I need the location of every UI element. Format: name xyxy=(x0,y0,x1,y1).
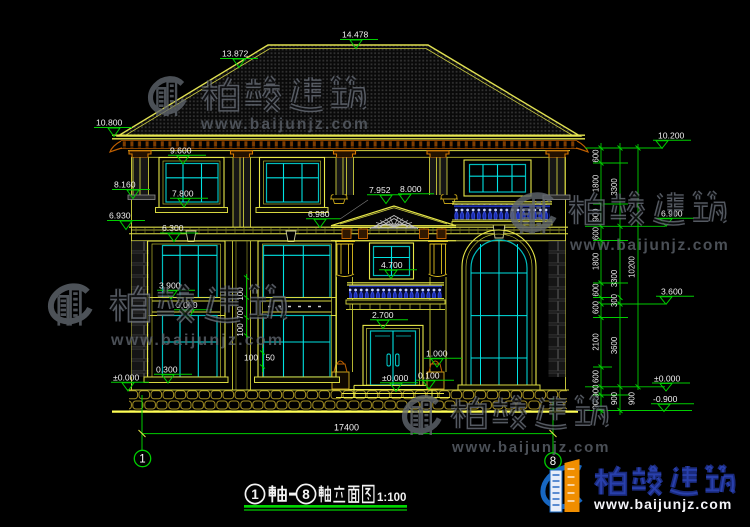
svg-text:9.600: 9.600 xyxy=(170,146,192,156)
svg-text:2.700: 2.700 xyxy=(372,310,394,320)
svg-text:1: 1 xyxy=(139,454,145,466)
svg-text:7.952: 7.952 xyxy=(369,185,391,195)
svg-text:3.600: 3.600 xyxy=(661,287,683,297)
svg-text:6.930: 6.930 xyxy=(109,211,131,221)
svg-text:8.000: 8.000 xyxy=(400,184,422,194)
svg-text:www.baijunjz.com: www.baijunjz.com xyxy=(110,332,284,349)
svg-text:1:100: 1:100 xyxy=(377,492,406,504)
svg-text:-0.900: -0.900 xyxy=(653,394,678,404)
svg-text:14.478: 14.478 xyxy=(342,30,369,40)
svg-text:900: 900 xyxy=(628,391,637,405)
svg-text:13.872: 13.872 xyxy=(222,49,249,59)
svg-text:1: 1 xyxy=(251,487,259,502)
svg-text:10.800: 10.800 xyxy=(96,118,123,128)
svg-text:0.300: 0.300 xyxy=(156,365,178,375)
svg-text:4.700: 4.700 xyxy=(381,260,403,270)
svg-text:10200: 10200 xyxy=(628,255,637,277)
svg-text:1800: 1800 xyxy=(592,252,601,270)
svg-text:600: 600 xyxy=(592,300,601,314)
svg-text:10.200: 10.200 xyxy=(658,131,685,141)
svg-text:900: 900 xyxy=(610,391,619,405)
svg-text:300: 300 xyxy=(610,293,619,307)
svg-text:600: 600 xyxy=(592,149,601,163)
svg-text:±0.000: ±0.000 xyxy=(654,374,680,384)
svg-text:8: 8 xyxy=(550,456,556,468)
svg-text:1800: 1800 xyxy=(592,174,601,192)
svg-text:±0.000: ±0.000 xyxy=(382,373,408,383)
svg-text:0.100: 0.100 xyxy=(418,371,440,381)
svg-text:www.baijunjz.com: www.baijunjz.com xyxy=(569,237,729,254)
svg-text:8.160: 8.160 xyxy=(114,180,136,190)
svg-text:2100: 2100 xyxy=(592,333,601,351)
svg-text:www.baijunjz.com: www.baijunjz.com xyxy=(451,439,610,456)
svg-text:3300: 3300 xyxy=(610,269,619,287)
svg-text:3.900: 3.900 xyxy=(159,281,181,291)
svg-text:7.800: 7.800 xyxy=(172,189,194,199)
svg-text:www.baijunjz.com: www.baijunjz.com xyxy=(593,496,732,512)
svg-text:6.300: 6.300 xyxy=(162,223,184,233)
svg-text:8: 8 xyxy=(302,487,310,502)
svg-text:50: 50 xyxy=(266,353,276,363)
svg-text:3300: 3300 xyxy=(610,178,619,196)
svg-text:6.980: 6.980 xyxy=(308,209,330,219)
svg-text:www.baijunjz.com: www.baijunjz.com xyxy=(200,116,370,133)
svg-text:100: 100 xyxy=(244,353,258,363)
svg-text:17400: 17400 xyxy=(334,423,359,433)
svg-text:600: 600 xyxy=(592,283,601,297)
svg-text:1.000: 1.000 xyxy=(426,349,448,359)
svg-text:±0.000: ±0.000 xyxy=(113,373,139,383)
svg-text:3600: 3600 xyxy=(610,336,619,354)
svg-text:600: 600 xyxy=(592,369,601,383)
